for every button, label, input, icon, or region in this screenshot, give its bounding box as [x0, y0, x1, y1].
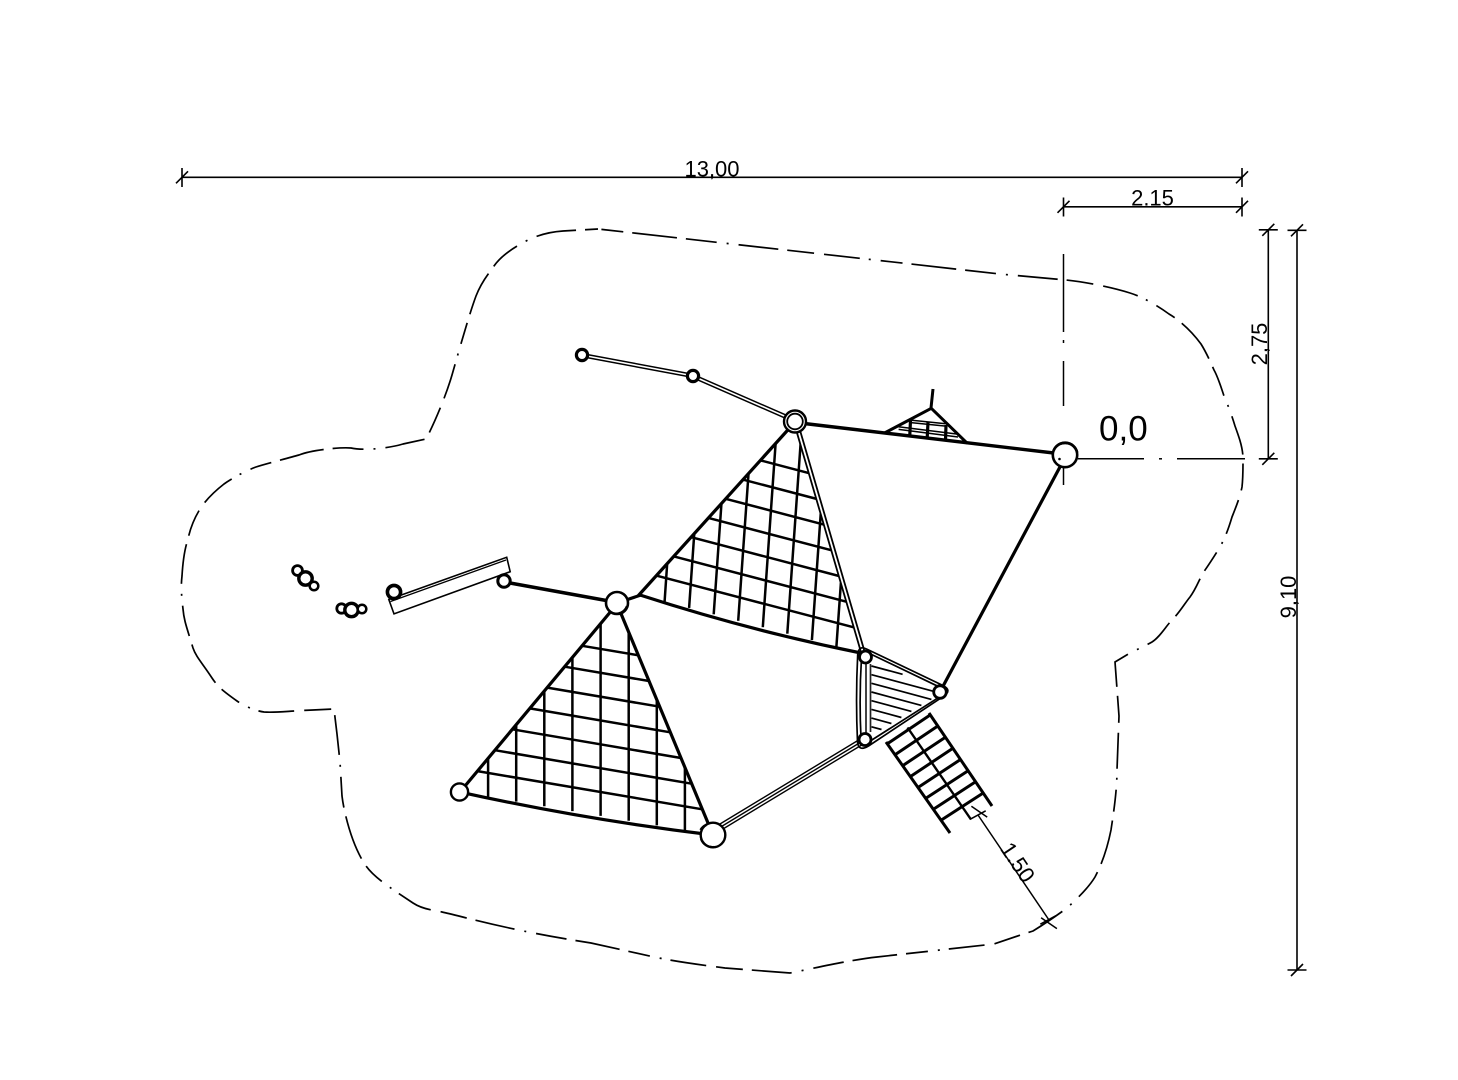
svg-text:9,10: 9,10 — [1276, 576, 1301, 619]
svg-text:2.15: 2.15 — [1131, 185, 1174, 210]
svg-text:2,75: 2,75 — [1247, 323, 1272, 366]
svg-text:0,0: 0,0 — [1099, 410, 1148, 449]
svg-text:13,00: 13,00 — [684, 157, 739, 182]
